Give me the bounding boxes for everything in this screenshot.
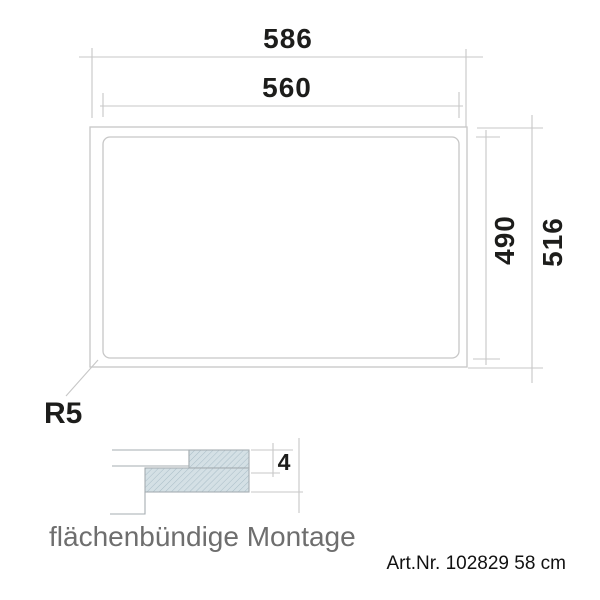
section-glass-panel bbox=[189, 450, 249, 468]
technical-drawing-page: 586 560 490 516 R5 4 flächenbündige Mont… bbox=[0, 0, 600, 600]
label-inner-width: 560 bbox=[262, 72, 312, 103]
dimension-drawing: 586 560 490 516 R5 4 flächenbündige Mont… bbox=[0, 0, 600, 600]
corner-radius-leader-line bbox=[66, 360, 98, 396]
cooktop-inner-outline bbox=[103, 137, 459, 358]
label-panel-thickness: 4 bbox=[278, 449, 291, 475]
section-view bbox=[110, 438, 303, 514]
section-appliance-body bbox=[145, 468, 249, 492]
countertop-lower-outline bbox=[110, 492, 145, 514]
countertop-lip-outline bbox=[112, 450, 189, 466]
article-number: Art.Nr. 102829 58 cm bbox=[386, 553, 566, 574]
label-outer-width: 586 bbox=[263, 23, 313, 54]
label-outer-height: 516 bbox=[537, 217, 568, 267]
section-caption: flächenbündige Montage bbox=[49, 521, 356, 552]
label-corner-radius: R5 bbox=[44, 397, 82, 430]
label-inner-height: 490 bbox=[489, 215, 520, 265]
